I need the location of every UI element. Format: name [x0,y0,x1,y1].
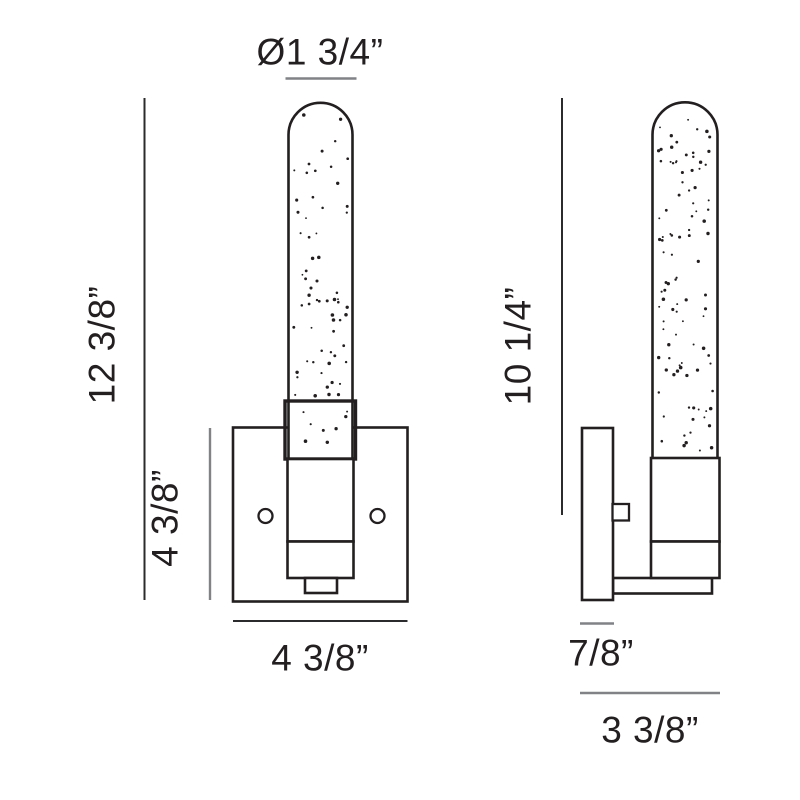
dimension-diagram: Ø1 3/4” 12 3/8” 4 3/8” 4 3/8” 10 1/4” 7/… [0,0,800,800]
dim-label-backplate-depth: 7/8” [568,635,634,672]
mounting-tab-front [305,578,337,593]
dimension-lines [145,79,721,694]
glass-tube-side [653,102,718,458]
dim-label-backplate-width: 4 3/8” [271,640,369,677]
socket-body-side [651,458,720,542]
dim-label-overall-height: 12 3/8” [84,286,121,405]
socket-base-front [288,542,354,579]
set-screw-knob-side [613,504,630,521]
screw-hole-right [371,509,385,523]
socket-base-side [651,542,720,579]
side-view [582,102,720,600]
mounting-arm-side [613,578,712,594]
dim-label-overall-depth: 3 3/8” [601,712,699,749]
dim-label-shade-height: 10 1/4” [500,287,537,406]
glass-tube-front [289,103,353,459]
dim-label-shade-diameter: Ø1 3/4” [257,34,384,71]
mounting-plate-side [582,428,613,600]
front-view [233,103,408,602]
dim-label-backplate-height: 4 3/8” [147,469,184,567]
screw-hole-left [259,509,273,523]
socket-body-front [288,459,354,542]
